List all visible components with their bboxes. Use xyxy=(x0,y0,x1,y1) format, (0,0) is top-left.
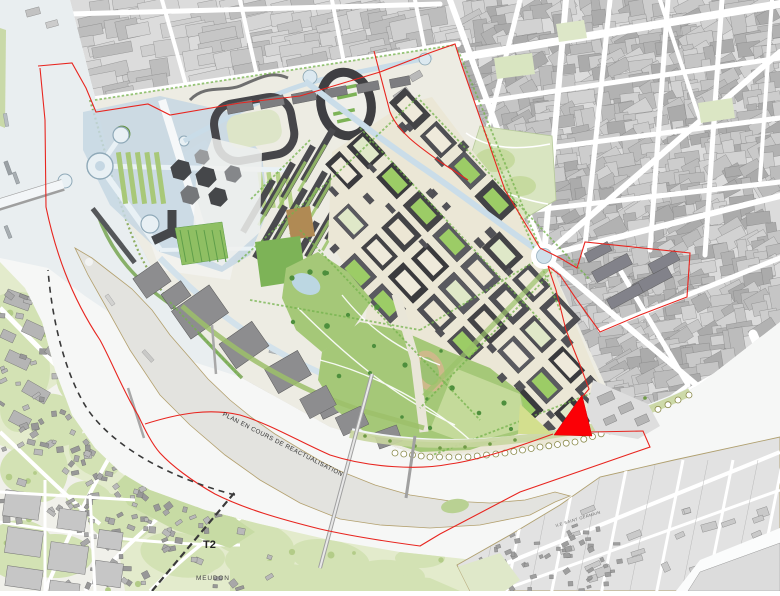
svg-text:T2: T2 xyxy=(203,539,216,551)
svg-text:MEUDON: MEUDON xyxy=(196,575,230,582)
